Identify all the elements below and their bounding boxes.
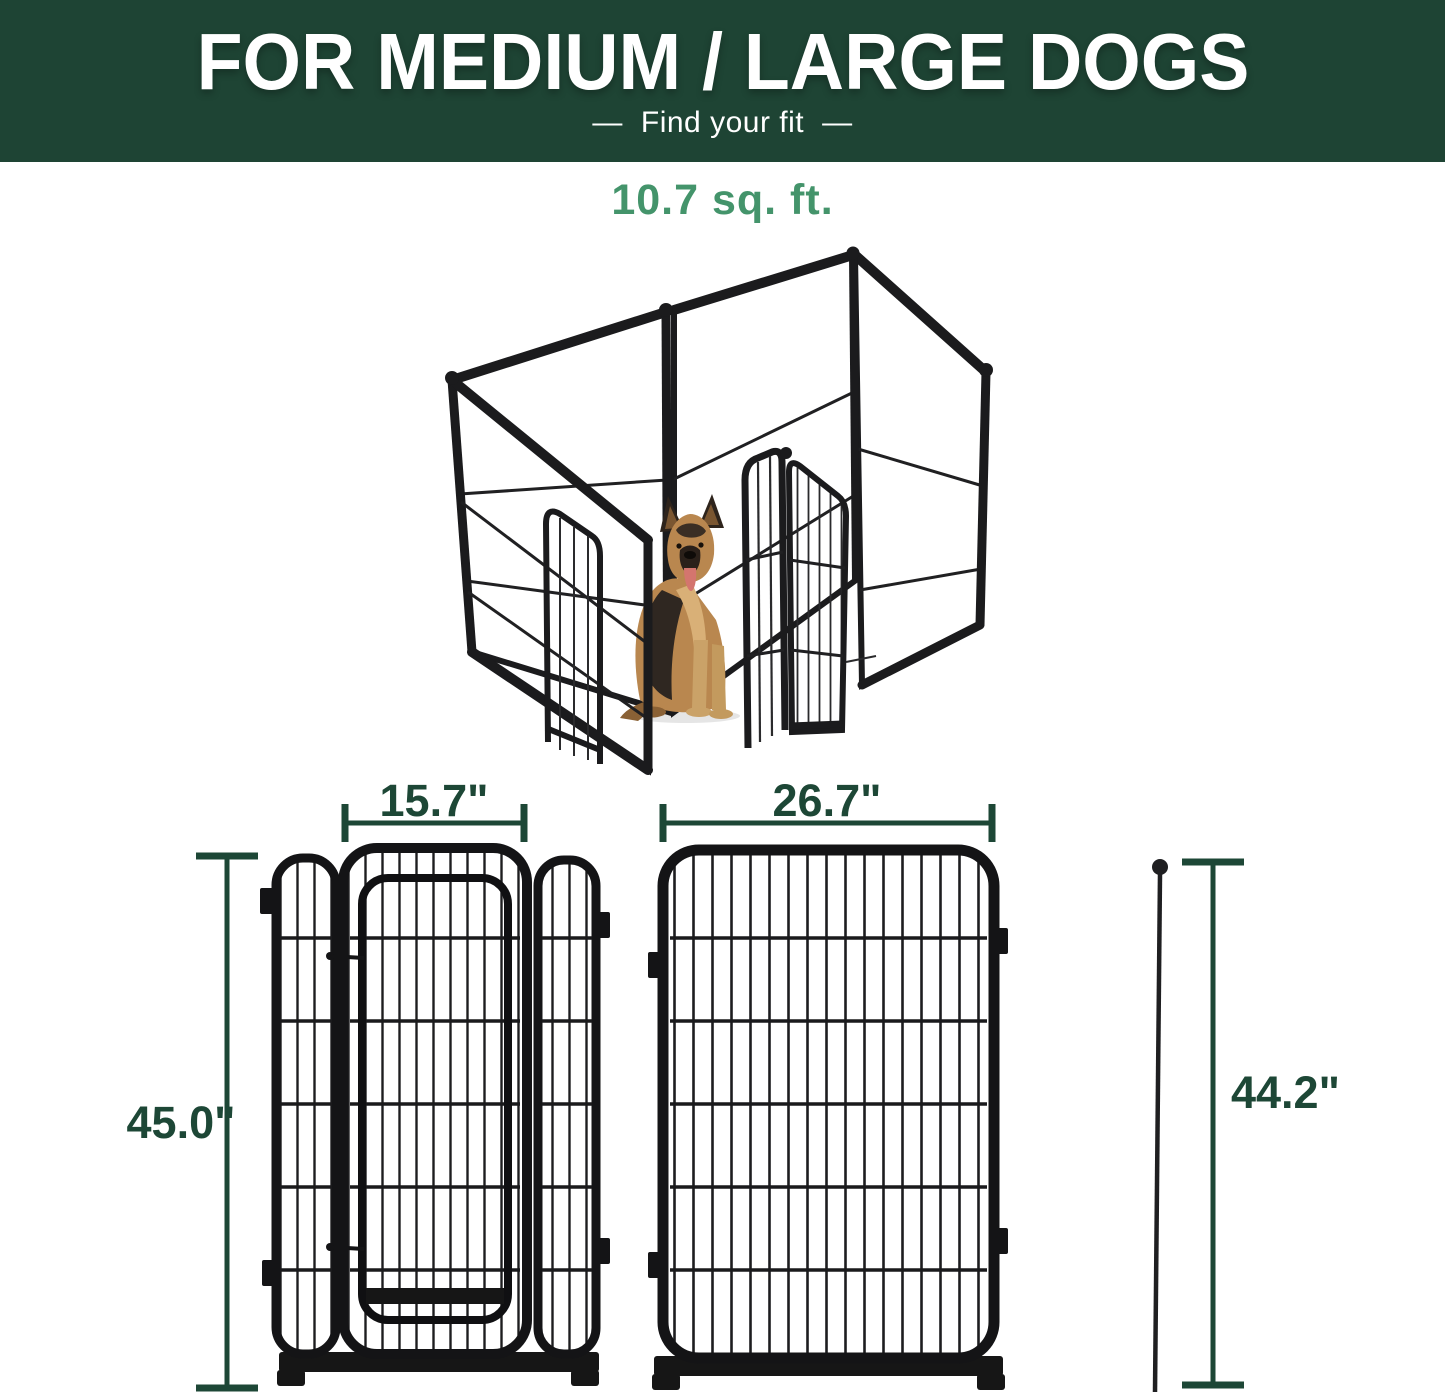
door-section-height-label: 45.0" bbox=[127, 1097, 236, 1148]
regular-panel-width-label: 26.7" bbox=[773, 780, 882, 826]
door-section-diagram bbox=[260, 848, 610, 1386]
panel-side-profile bbox=[1152, 859, 1168, 1392]
subtitle-right-dash: — bbox=[822, 106, 853, 140]
subtitle-text: Find your fit bbox=[641, 106, 804, 140]
pen-inner-gate bbox=[546, 512, 600, 764]
area-size-label: 10.7 sq. ft. bbox=[0, 176, 1445, 225]
subtitle-left-dash: — bbox=[592, 106, 623, 140]
dimension-diagram: 45.0" bbox=[0, 780, 1445, 1395]
door-section-width-dimension: 15.7" bbox=[345, 780, 524, 842]
door-section-height-dimension: 45.0" bbox=[127, 856, 258, 1388]
panel-height-label: 44.2" bbox=[1231, 1067, 1340, 1118]
header-banner: FOR MEDIUM / LARGE DOGS — Find your fit … bbox=[0, 0, 1445, 162]
door-section-width-label: 15.7" bbox=[380, 780, 489, 826]
regular-panel-width-dimension: 26.7" bbox=[663, 780, 992, 842]
product-photo-playpen-with-dog bbox=[0, 230, 1445, 790]
pen-right-panel bbox=[855, 255, 986, 685]
regular-panel-diagram bbox=[648, 850, 1008, 1390]
header-subtitle: — Find your fit — bbox=[574, 106, 870, 140]
product-infographic: FOR MEDIUM / LARGE DOGS — Find your fit … bbox=[0, 0, 1445, 1395]
page-title: FOR MEDIUM / LARGE DOGS bbox=[196, 22, 1249, 102]
panel-height-dimension: 44.2" bbox=[1182, 862, 1340, 1385]
